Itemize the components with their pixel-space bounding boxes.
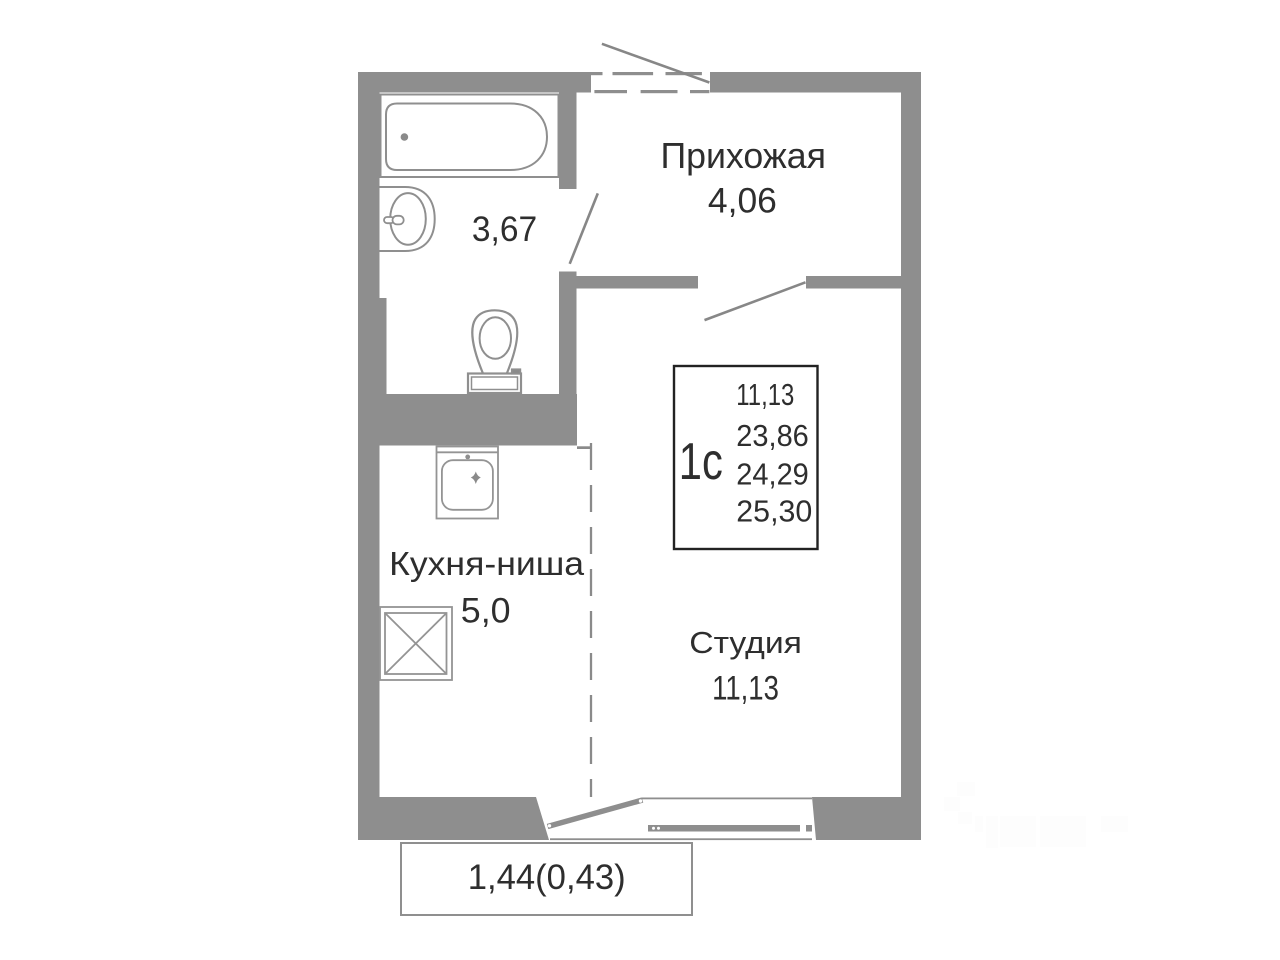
svg-text:25,30: 25,30 — [736, 494, 812, 529]
svg-text:3,67: 3,67 — [472, 209, 537, 249]
svg-text:5,0: 5,0 — [461, 591, 511, 630]
svg-text:1,44(0,43): 1,44(0,43) — [468, 857, 626, 897]
svg-text:11,13: 11,13 — [736, 377, 794, 412]
svg-text:11,13: 11,13 — [712, 669, 779, 707]
svg-text:23,86: 23,86 — [736, 418, 809, 453]
svg-text:Прихожая: Прихожая — [660, 135, 826, 176]
svg-text:24,29: 24,29 — [736, 456, 809, 491]
svg-text:4,06: 4,06 — [708, 180, 777, 220]
svg-text:1с: 1с — [679, 433, 723, 491]
svg-text:Кухня-ниша: Кухня-ниша — [389, 546, 584, 583]
svg-text:Студия: Студия — [689, 625, 802, 660]
